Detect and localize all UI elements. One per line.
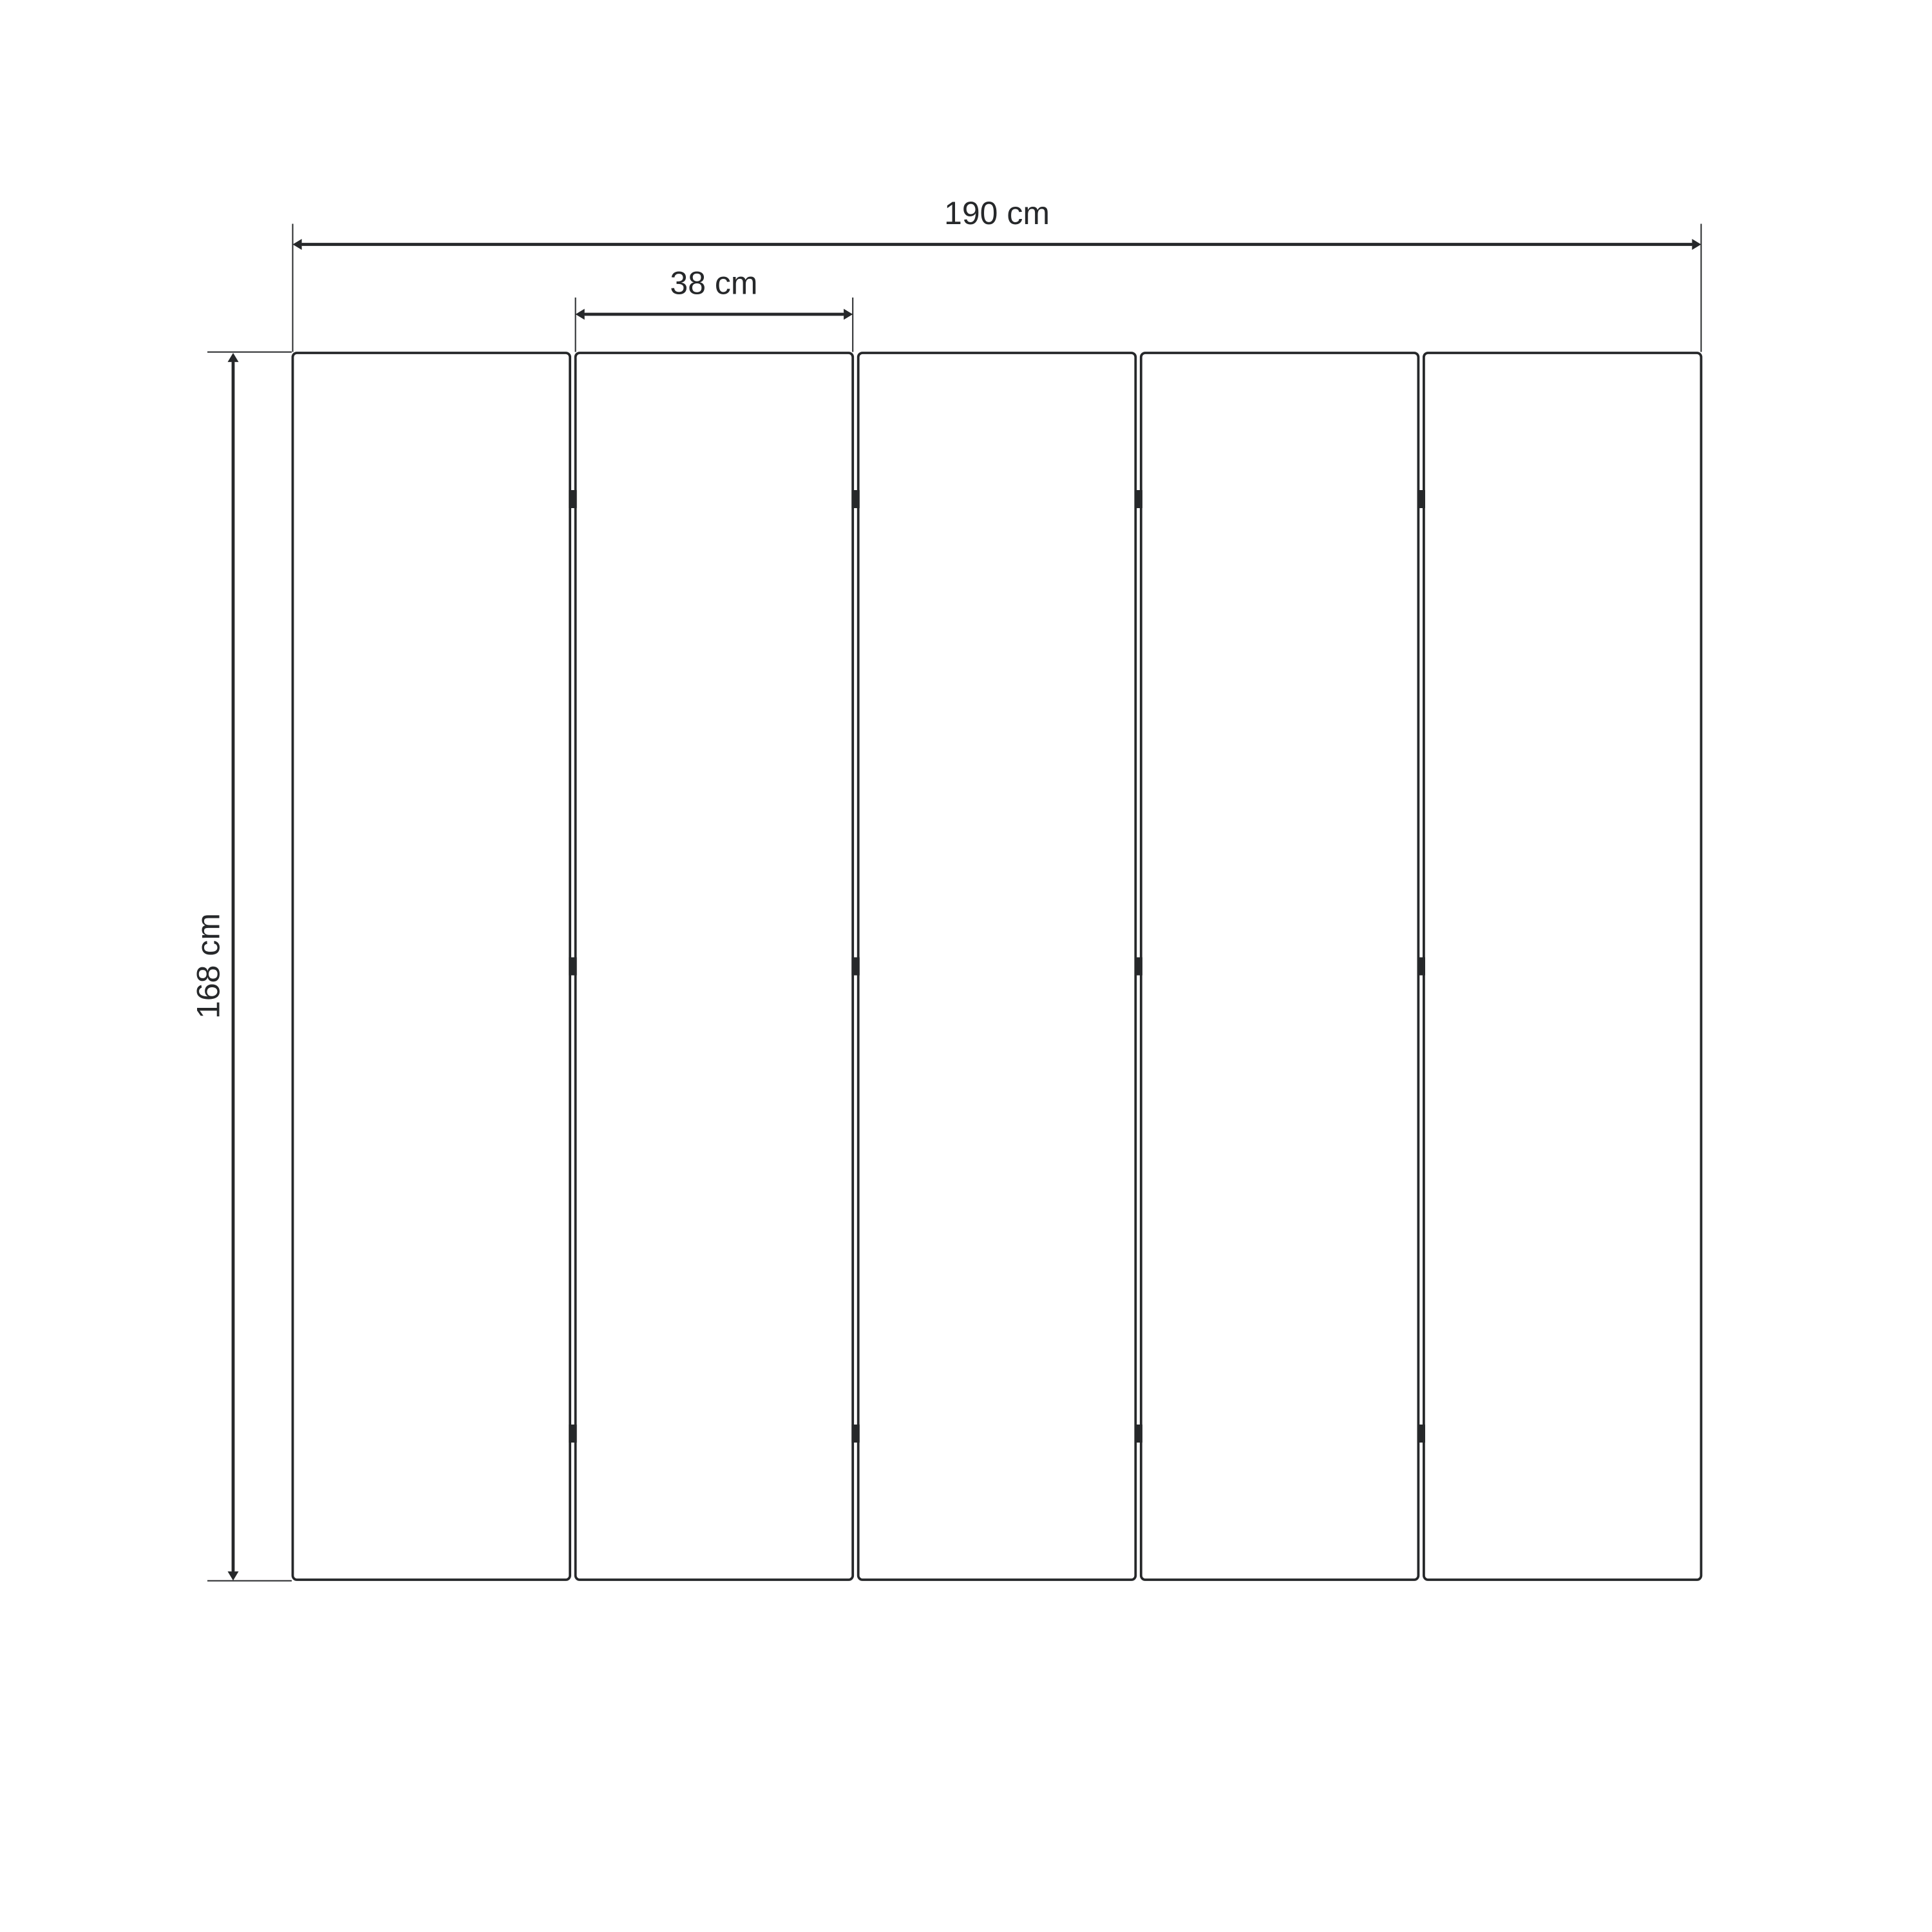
svg-text:168 cm: 168 cm [191, 913, 227, 1019]
svg-text:38 cm: 38 cm [670, 265, 757, 301]
svg-text:190 cm: 190 cm [944, 195, 1050, 231]
